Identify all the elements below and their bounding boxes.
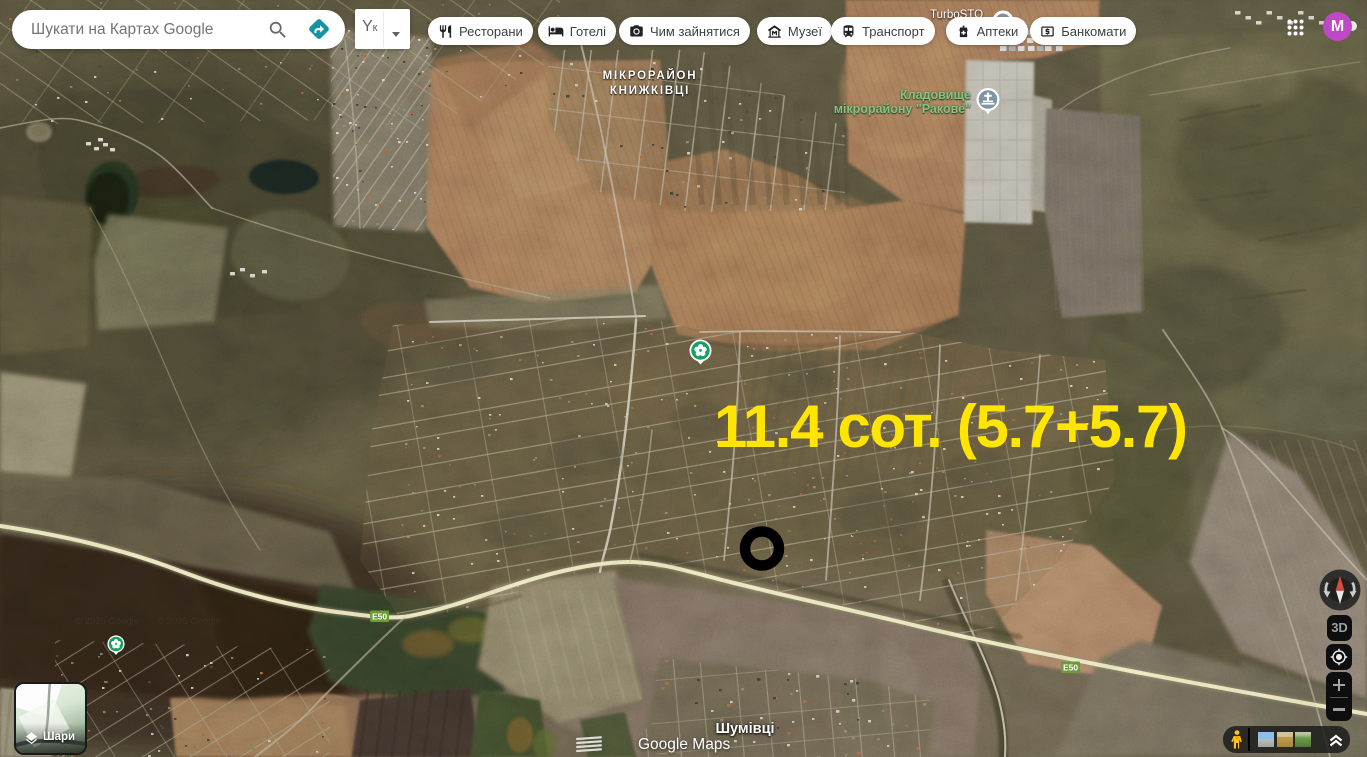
svg-text:МІКРОРАЙОН: МІКРОРАЙОН xyxy=(603,69,698,82)
svg-text:мікрорайону "Ракове": мікрорайону "Ракове" xyxy=(834,102,971,116)
svg-text:© 2025 Google: © 2025 Google xyxy=(157,616,221,627)
svg-text:Кладовище: Кладовище xyxy=(900,88,971,102)
svg-text:Google Maps: Google Maps xyxy=(638,736,730,753)
svg-text:11.4 сот. (5.7+5.7): 11.4 сот. (5.7+5.7) xyxy=(714,393,1188,460)
svg-text:E50: E50 xyxy=(1063,663,1078,673)
svg-text:Шумівці: Шумівці xyxy=(715,721,774,737)
svg-text:КНИЖКІВЦІ: КНИЖКІВЦІ xyxy=(610,85,690,97)
svg-text:E50: E50 xyxy=(372,612,387,622)
svg-text:© 2025 Google: © 2025 Google xyxy=(75,616,139,627)
